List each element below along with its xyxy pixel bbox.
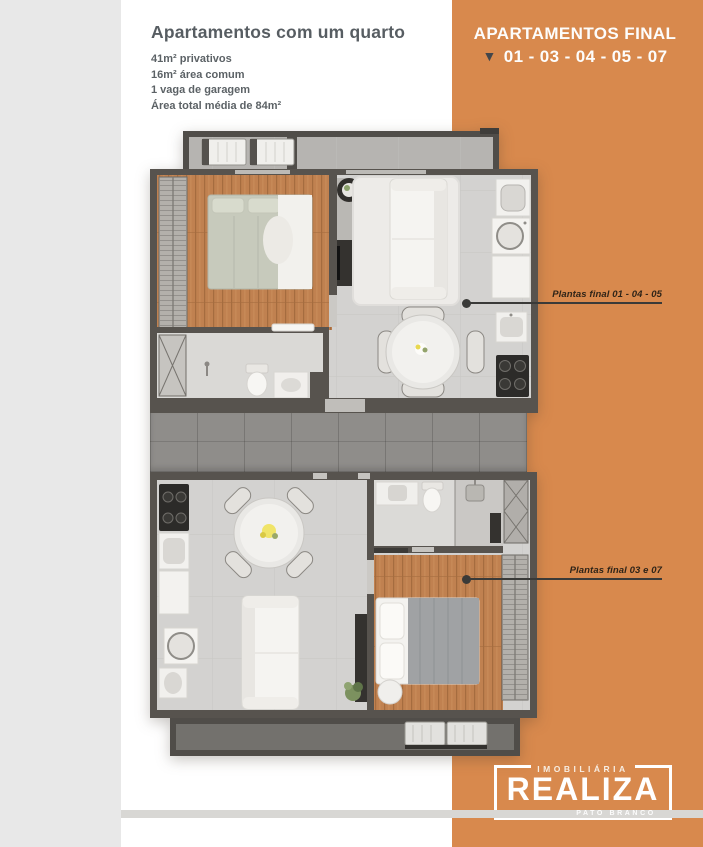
balcony-bottom [170, 718, 520, 756]
cooktop [496, 355, 529, 397]
tv [337, 246, 340, 280]
bedroom-door-opening [329, 295, 337, 327]
bathroom [157, 324, 329, 398]
bathroom-door-opening [412, 547, 434, 552]
plan-label-bottom: Plantas final 03 e 07 [540, 565, 662, 576]
floor-plan-bottom [150, 472, 537, 762]
banner-unit-numbers: 01 - 03 - 04 - 05 - 07 [504, 47, 668, 66]
building-corridor [150, 413, 527, 472]
bedroom-door-opening [367, 560, 374, 594]
kitchen-laundry [492, 179, 530, 397]
kitchen-sink [496, 312, 527, 342]
bath-cabinet [490, 513, 501, 543]
dining-set [222, 485, 317, 581]
entrance-opening [313, 473, 327, 479]
detail-total-area: Área total média de 84m² [151, 99, 451, 115]
ac-unit [405, 722, 445, 745]
plan-label-top: Plantas final 01 - 04 - 05 [520, 289, 662, 300]
shower-box [159, 335, 186, 396]
logo-tagline-bottom: PATO BRANCO [560, 810, 672, 817]
detail-private-area: 41m² privativos [151, 52, 451, 68]
realiza-logo: REALIZA [494, 771, 672, 808]
entrance-opening [325, 399, 365, 412]
apartments-banner: APARTAMENTOS FINAL ▼01 - 03 - 04 - 05 - … [452, 24, 698, 67]
door-opening [358, 473, 370, 479]
double-bed [376, 598, 479, 684]
detail-common-area: 16m² área comum [151, 68, 451, 84]
balcony-top [183, 128, 499, 169]
wardrobe [159, 177, 187, 328]
header-block: Apartamentos com um quarto 41m² privativ… [151, 22, 451, 114]
pouf [378, 680, 402, 704]
floor-plan-top [150, 128, 538, 413]
vanity-sink [376, 482, 418, 505]
wardrobe [502, 555, 528, 700]
washing-machine [492, 218, 530, 254]
sofa [390, 179, 447, 299]
page-title: Apartamentos com um quarto [151, 22, 451, 43]
vanity-sink [274, 372, 308, 398]
detail-garage: 1 vaga de garagem [151, 83, 451, 99]
callout-line-bottom [466, 578, 662, 580]
banner-title: APARTAMENTOS FINAL [452, 24, 698, 44]
sofa [242, 596, 299, 709]
toilet [246, 364, 268, 396]
closet [504, 480, 528, 543]
living-balcony-door [346, 170, 426, 174]
screenshot-root: Apartamentos com um quarto 41m² privativ… [0, 0, 703, 847]
door-leaf [374, 548, 408, 553]
counter [159, 571, 189, 614]
double-bed [208, 195, 312, 289]
bathroom [367, 478, 503, 553]
washing-machine [164, 628, 198, 664]
callout-line-top [466, 302, 662, 304]
ac-unit [250, 139, 294, 165]
laundry-sink [159, 668, 187, 698]
ac-unit [447, 722, 487, 745]
balcony-door [235, 170, 290, 174]
ac-unit [202, 139, 246, 165]
triangle-down-icon: ▼ [482, 48, 496, 64]
cooktop [159, 484, 189, 531]
door-leaf [272, 324, 314, 331]
floor-plans-illustration [150, 128, 538, 762]
